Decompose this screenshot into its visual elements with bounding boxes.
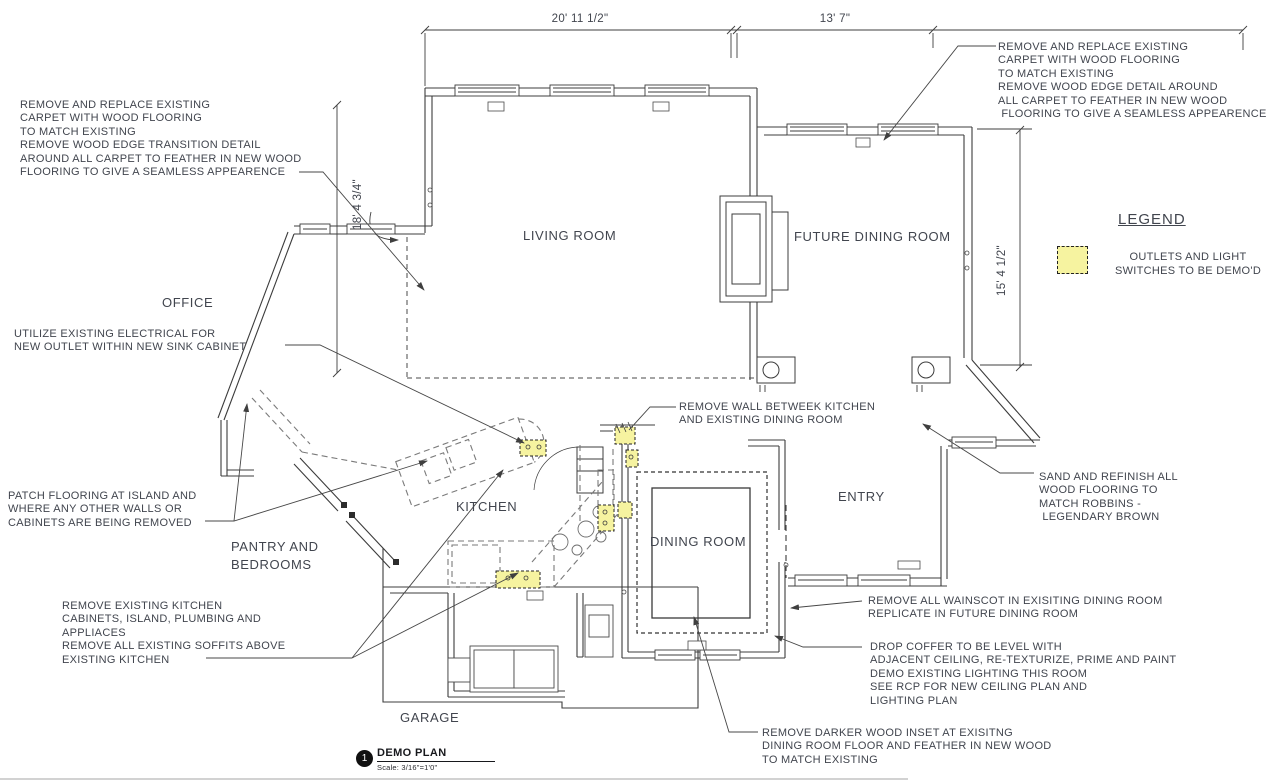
drawing-title: DEMO PLAN xyxy=(377,747,495,762)
carpet-boundary-dashed xyxy=(407,237,755,378)
columns xyxy=(757,357,950,392)
annotation-carpet-left: REMOVE AND REPLACE EXISTING CARPET WITH … xyxy=(20,99,302,179)
annotation-wainscot: REMOVE ALL WAINSCOT IN EXISITING DINING … xyxy=(868,595,1163,622)
room-label-kitchen: KITCHEN xyxy=(456,499,517,514)
wood-inset-outline xyxy=(652,488,750,618)
dimension-top-left: 20' 11 1/2" xyxy=(515,13,645,25)
room-label-future-dining-room: FUTURE DINING ROOM xyxy=(794,229,951,244)
demo-outlet-highlights xyxy=(496,427,638,588)
annotation-wood-inset: REMOVE DARKER WOOD INSET AT EXISITNG DIN… xyxy=(762,727,1052,767)
windows xyxy=(300,85,996,660)
wall-fixtures xyxy=(428,102,969,650)
annotation-sand-refinish: SAND AND REFINISH ALL WOOD FLOORING TO M… xyxy=(1039,471,1178,525)
annotation-electrical: UTILIZE EXISTING ELECTRICAL FOR NEW OUTL… xyxy=(14,328,246,355)
annotation-carpet-right: REMOVE AND REPLACE EXISTING CARPET WITH … xyxy=(998,41,1267,121)
annotation-remove-kitchen: REMOVE EXISTING KITCHEN CABINETS, ISLAND… xyxy=(62,600,285,667)
demo-plan-page: 20' 11 1/2" 13' 7" 18' 4 3/4" 15' 4 1/2"… xyxy=(0,0,1278,783)
annotation-remove-wall: REMOVE WALL BETWEEK KITCHEN AND EXISTING… xyxy=(679,401,875,428)
room-label-office: OFFICE xyxy=(162,295,213,310)
annotation-patch-flooring: PATCH FLOORING AT ISLAND AND WHERE ANY O… xyxy=(8,490,197,530)
room-label-pantry: PANTRY AND BEDROOMS xyxy=(231,538,319,573)
demo-highlight-swatch xyxy=(1057,246,1088,274)
mudroom-furniture xyxy=(448,605,613,692)
room-label-garage: GARAGE xyxy=(400,710,459,725)
leader-lines xyxy=(205,46,1034,732)
dimension-left-side: 18' 4 3/4" xyxy=(352,140,364,230)
room-label-dining-room: DINING ROOM xyxy=(650,534,746,549)
sheet-number-badge: 1 xyxy=(356,750,373,767)
sheet-number: 1 xyxy=(362,753,368,764)
room-label-entry: ENTRY xyxy=(838,489,885,504)
title-block: 1 DEMO PLAN Scale: 3/16"=1'0" xyxy=(356,747,495,772)
dimension-right-side: 15' 4 1/2" xyxy=(996,206,1008,296)
legend-title: LEGEND xyxy=(1118,211,1186,228)
annotation-drop-coffer: DROP COFFER TO BE LEVEL WITH ADJACENT CE… xyxy=(870,641,1176,708)
room-label-living-room: LIVING ROOM xyxy=(523,228,616,243)
legend-item-label: OUTLETS AND LIGHT SWITCHES TO BE DEMO'D xyxy=(1098,250,1278,279)
fireplace xyxy=(720,196,788,302)
drawing-scale: Scale: 3/16"=1'0" xyxy=(377,763,495,772)
wainscot-dashed-outline xyxy=(637,472,767,633)
dimension-top-right: 13' 7" xyxy=(785,13,885,25)
